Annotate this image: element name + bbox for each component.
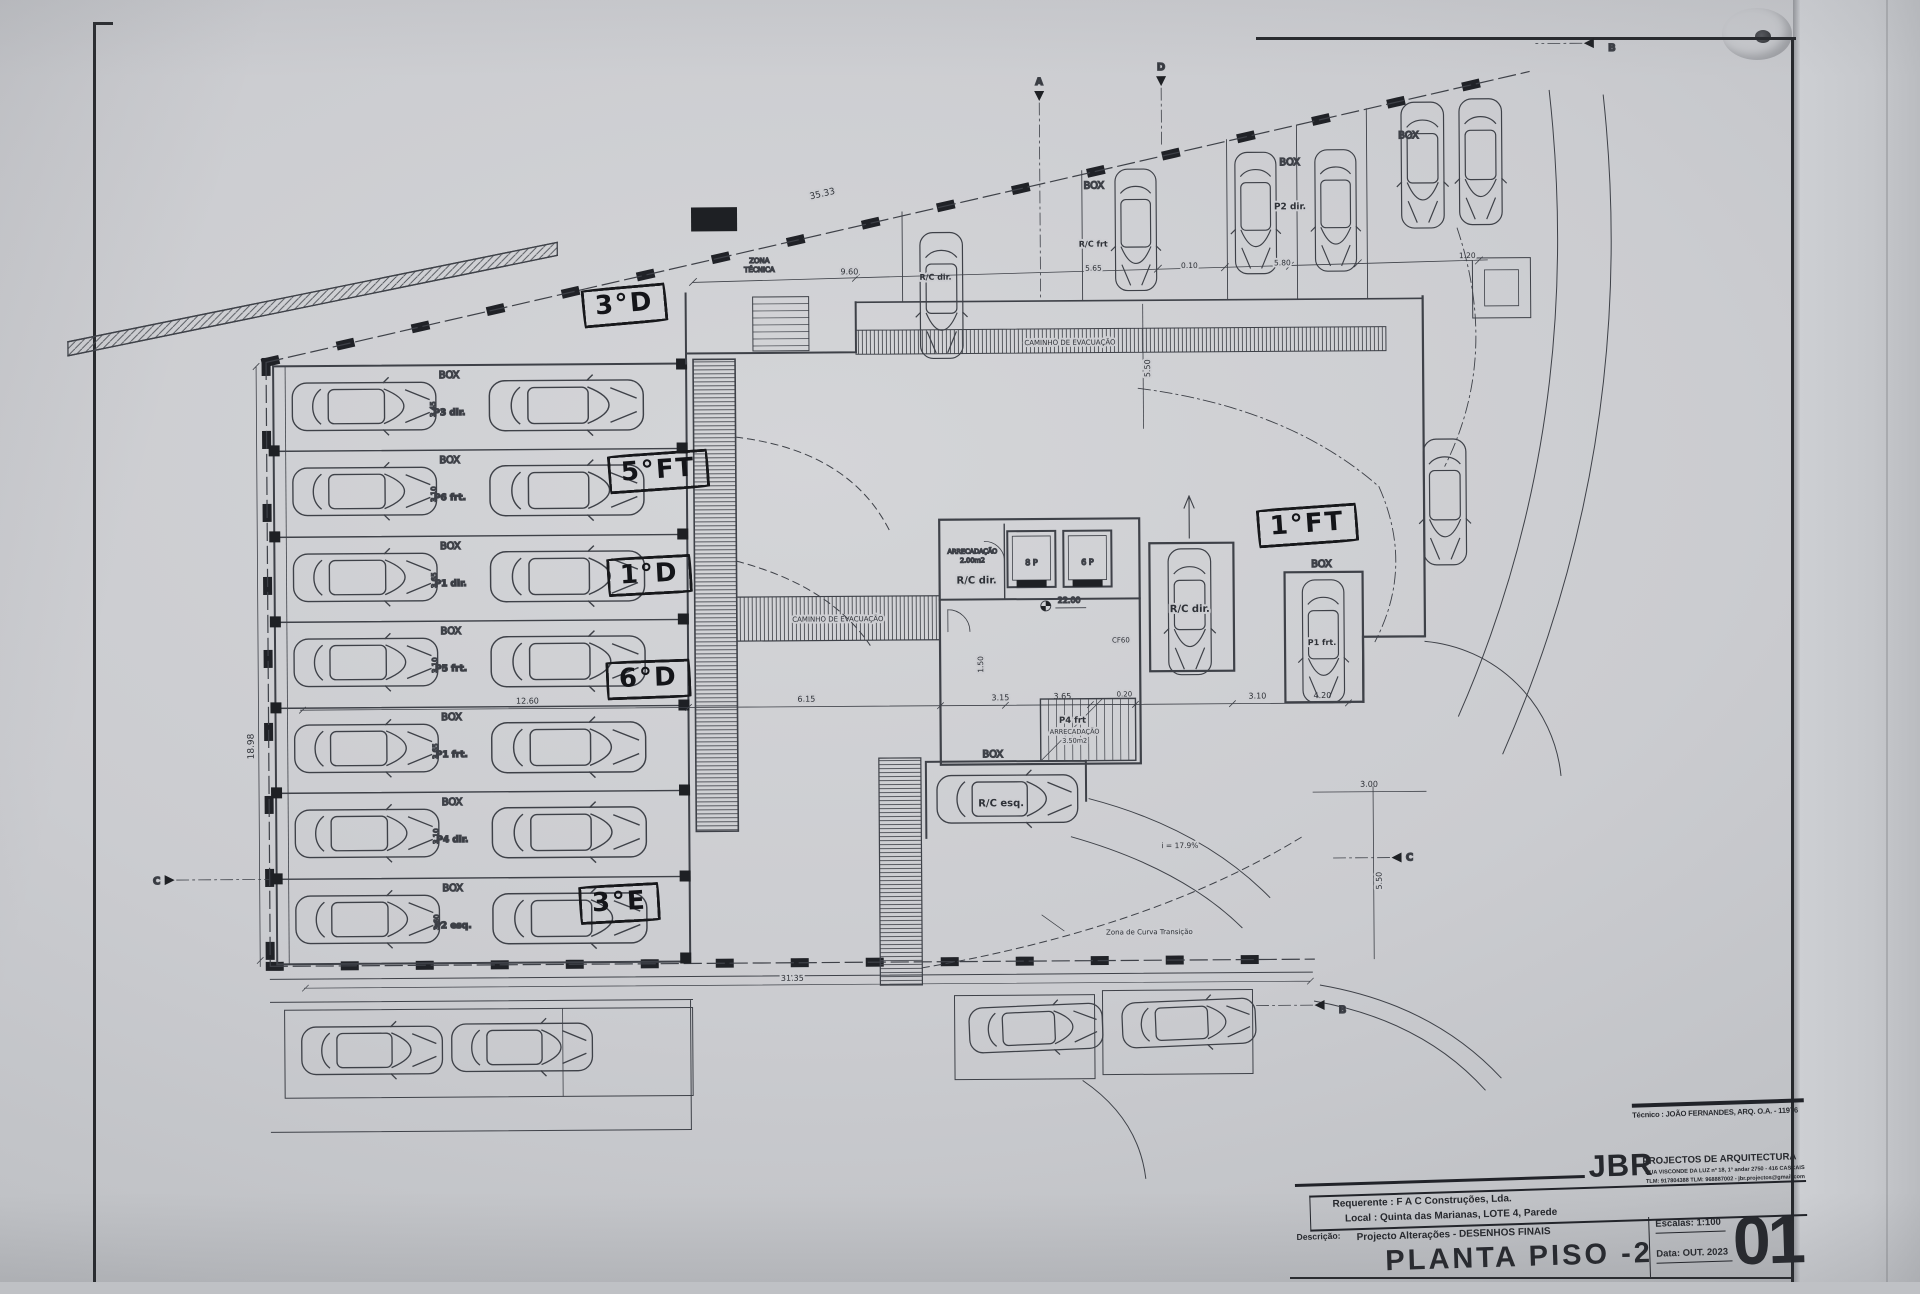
zona-tecnica-label: TÉCNICA xyxy=(743,265,775,274)
dimension-total: 35.33 xyxy=(809,187,836,202)
section-letter-b: B xyxy=(1608,43,1616,54)
scanned-drawing-photo: BOX P3 dir. 3.45 BOX P6 frt. 3.10 BOX P1… xyxy=(0,0,1920,1282)
stall-dim: 3.10 xyxy=(430,486,438,502)
annotation-text: 5°FT xyxy=(620,452,697,487)
stall-dim: 3.65 xyxy=(431,572,439,588)
title-block: JBR PROJECTOS DE ARQUITECTURA RUA VISCON… xyxy=(1294,1142,1810,1288)
unit-label: R/C dir. xyxy=(919,273,951,282)
street-curves-right xyxy=(1308,90,1617,1091)
drive-curves-dashdot xyxy=(1137,228,1478,643)
local-value: Quinta das Marianas, LOTE 4, Parede xyxy=(1380,1207,1558,1224)
requerente-row: Requerente : F A C Construções, Lda. xyxy=(1332,1193,1512,1210)
box-label: BOX xyxy=(439,370,460,381)
scale-value: Escalas: 1:100 xyxy=(1655,1217,1725,1234)
parking-row: BOX P3 dir. 3.45 xyxy=(292,369,643,437)
street-cars-top-right: BOX xyxy=(1397,98,1533,565)
curve-zone-label: Zona de Curva Transição xyxy=(1106,928,1193,937)
zona-tecnica: ZONA TÉCNICA xyxy=(685,256,856,363)
drawing-title: PLANTA PISO -2 xyxy=(1385,1237,1653,1278)
box-label: BOX xyxy=(442,797,463,808)
stall-dim: 3.45 xyxy=(429,401,437,417)
box-label: BOX xyxy=(1083,181,1104,192)
box-label: BOX xyxy=(439,455,460,466)
stall-code: P6 frt. xyxy=(434,493,466,503)
requerente-value: F A C Construções, Lda. xyxy=(1396,1193,1512,1208)
box-label: BOX xyxy=(441,712,462,723)
sheet-number: 01 xyxy=(1732,1200,1804,1280)
ramp-hatch-bands: CAMINHO DE EVACUAÇÃO xyxy=(693,358,942,987)
local-label: Local : xyxy=(1345,1212,1378,1224)
floor-plan-drawing: BOX P3 dir. 3.45 BOX P6 frt. 3.10 BOX P1… xyxy=(0,0,1920,1282)
section-letter-a: A xyxy=(1035,77,1043,88)
local-row: Local : Quinta das Marianas, LOTE 4, Par… xyxy=(1345,1207,1558,1225)
dimension: 5.65 xyxy=(1085,264,1102,273)
dimension: 0.10 xyxy=(1181,261,1198,270)
caminho-evacuacao-label: CAMINHO DE EVACUAÇÃO xyxy=(1024,337,1116,347)
zona-tecnica-label: ZONA xyxy=(749,257,770,265)
unit-label: R/C frt xyxy=(1079,240,1108,249)
descricao-label: Descrição: xyxy=(1296,1231,1340,1242)
storage-area: 3.50m2 xyxy=(1062,737,1087,745)
bottom-street: 31.35 xyxy=(270,970,1314,1184)
level-value: 22.00 xyxy=(1058,596,1081,605)
annotation-text: 1°D xyxy=(619,557,679,590)
unit-label: R/C dir. xyxy=(1170,604,1210,615)
dimension: 5.50 xyxy=(1375,872,1384,890)
dimension: 6.15 xyxy=(797,695,815,704)
dimension: 3.00 xyxy=(1360,780,1378,789)
lift-label: 6 P xyxy=(1081,558,1094,567)
stall-code: P3 dir. xyxy=(433,408,465,418)
dimension: 9.60 xyxy=(840,267,858,276)
box-p1-frt: BOX P1 frt. xyxy=(1284,559,1363,703)
dimension: 1.50 xyxy=(976,656,985,673)
storage-label: ARRECADAÇÃO xyxy=(947,546,997,555)
storage-label: ARRECADAÇÃO xyxy=(1050,727,1100,736)
core-block: 8 P 6 P ARRECADAÇÃO 2.00m2 R/C dir. 22.0… xyxy=(939,518,1141,764)
caminho-evacuacao-label: CAMINHO DE EVACUAÇÃO xyxy=(792,614,884,624)
stall-dim: 3.10 xyxy=(431,657,439,673)
stall-code: P1 frt. xyxy=(436,750,468,760)
box-label: BOX xyxy=(1398,130,1419,141)
scale-date-column: Escalas: 1:100 Data: OUT. 2023 xyxy=(1648,1214,1737,1277)
stall-dim: 3.10 xyxy=(432,828,440,844)
firm-tagline: PROJECTOS DE ARQUITECTURA xyxy=(1642,1151,1804,1167)
dimension-total: 31.35 xyxy=(781,974,804,983)
slope-label: i = 17.9% xyxy=(1161,841,1198,850)
handwritten-unit-annotation: 3°E xyxy=(578,882,661,925)
dimension: 5.50 xyxy=(1143,359,1152,377)
box-label: BOX xyxy=(441,626,462,637)
unit-label: R/C esq. xyxy=(978,798,1024,809)
parking-row: BOX P6 frt. 3.10 xyxy=(293,454,644,522)
section-letter-d: D xyxy=(1157,62,1165,73)
parking-row: BOX P1 dir. 3.65 xyxy=(293,540,644,608)
stall-code: P5 frt. xyxy=(435,664,467,674)
stall-code: P4 frt xyxy=(1059,716,1086,726)
box-label: BOX xyxy=(440,541,461,552)
box-rc-esq: BOX R/C esq. i = 17.9% Zona de Curva Tra… xyxy=(926,747,1270,937)
stall-code: P1 frt. xyxy=(1308,638,1337,647)
requerente-label: Requerente : xyxy=(1332,1197,1393,1210)
stall-dim: 3.60 xyxy=(433,914,441,930)
handwritten-unit-annotation: 1°D xyxy=(606,554,693,597)
box-rc-dir: R/C dir. xyxy=(1149,496,1234,675)
dimension-total: 18.98 xyxy=(247,733,257,759)
annotation-text: 1°FT xyxy=(1269,506,1346,541)
neighbour-wall-band xyxy=(67,242,558,355)
box-label: BOX xyxy=(982,749,1003,760)
handwritten-unit-annotation: 5°FT xyxy=(607,449,710,495)
dimension: 3.10 xyxy=(1248,691,1266,700)
annotation-text: 6°D xyxy=(618,662,678,694)
box-label: BOX xyxy=(442,883,463,894)
fire-door-label: CF60 xyxy=(1112,636,1130,644)
titleblock-rule xyxy=(1295,1175,1585,1187)
dimension: 5.80 xyxy=(1274,258,1291,267)
top-parking: CAMINHO DE EVACUAÇÃO R/C dir. BOX R/C fr… xyxy=(854,108,1423,359)
section-letter-c: C xyxy=(153,876,160,887)
box-label: BOX xyxy=(1311,559,1332,570)
section-letter-b: B xyxy=(1339,1005,1347,1016)
dimension: 12.60 xyxy=(516,697,539,706)
box-label: BOX xyxy=(1279,157,1300,168)
dimension: 1.20 xyxy=(1459,251,1476,260)
left-dimension-line: 18.98 xyxy=(244,363,263,966)
parking-row: BOX P4 dir. 3.10 xyxy=(295,796,646,864)
stall-code: P4 dir. xyxy=(436,835,468,845)
stall-code: P2 dir. xyxy=(1274,202,1306,212)
dimension: 0.20 xyxy=(1117,690,1133,698)
unit-label: R/C dir. xyxy=(957,575,997,586)
parking-row: BOX P5 frt. 3.10 xyxy=(294,625,645,693)
mid-dimension-chain: 12.60 6.15 3.15 3.65 0.20 3.10 4.20 xyxy=(299,689,1351,713)
parking-row: BOX P1 frt. 3.65 xyxy=(294,711,645,779)
handwritten-unit-annotation: 6°D xyxy=(605,659,691,701)
handwritten-unit-annotation: 1°FT xyxy=(1256,503,1359,549)
annotation-text: 3°E xyxy=(591,886,647,919)
handwritten-unit-annotation: 3°D xyxy=(580,282,668,328)
drive-curves xyxy=(736,433,1303,969)
dimension: 3.15 xyxy=(991,693,1009,702)
stall-code: P1 dir. xyxy=(435,579,467,589)
lift-label: 8 P xyxy=(1025,558,1038,567)
date-value: Data: OUT. 2023 xyxy=(1656,1246,1732,1263)
section-letter-c: C xyxy=(1406,852,1413,863)
stall-dim: 3.65 xyxy=(432,743,440,759)
storage-area: 2.00m2 xyxy=(960,556,985,564)
annotation-text: 3°D xyxy=(594,287,655,322)
